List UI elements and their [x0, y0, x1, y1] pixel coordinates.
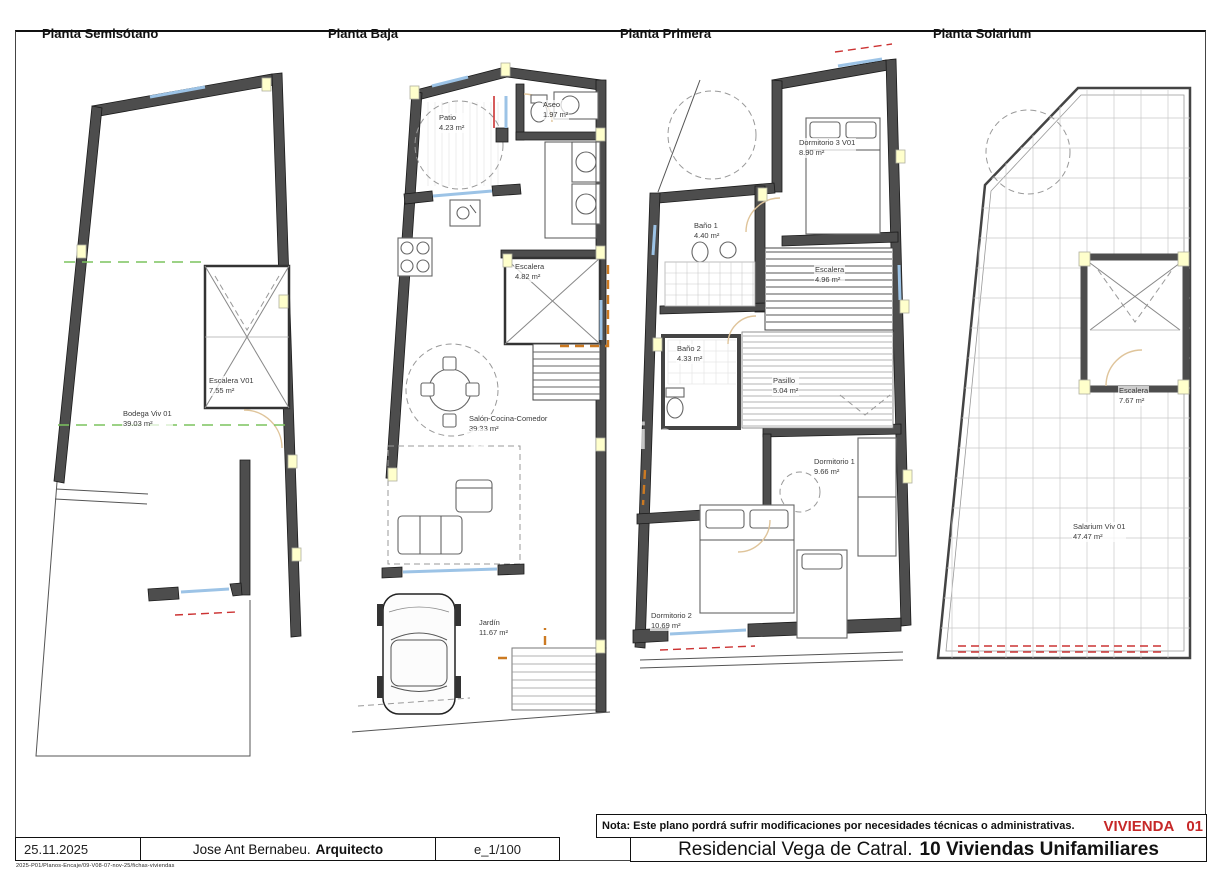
- titleblock-left-table: 25.11.2025 Jose Ant Bernabeu. Arquitecto…: [15, 837, 560, 861]
- architect-name: Jose Ant Bernabeu.: [193, 842, 311, 857]
- room-name: Baño 1: [694, 221, 718, 230]
- room-area: 7.67 m²: [1119, 396, 1148, 406]
- room-label-bano1: Baño 1 4.40 m²: [693, 221, 720, 241]
- room-label-salon: Salón-Cocina-Comedor 39.33 m²: [468, 414, 548, 434]
- room-name: Escalera: [515, 262, 544, 271]
- room-name: Baño 2: [677, 344, 701, 353]
- bed-icon-dormitorio3: [806, 118, 880, 234]
- room-name: Salón-Cocina-Comedor: [469, 414, 547, 423]
- bathroom-1-fixtures: [665, 242, 755, 306]
- window-icon: [403, 569, 497, 572]
- room-label-bano2: Baño 2 4.33 m²: [676, 344, 703, 364]
- plan-solarium-geometry: [938, 88, 1190, 658]
- room-area: 4.82 m²: [515, 272, 544, 282]
- window-icon: [181, 589, 229, 592]
- room-name: Escalera: [815, 265, 844, 274]
- room-area: 4.40 m²: [694, 231, 719, 241]
- room-label-dormitorio2: Dormitorio 2 10.69 m²: [650, 611, 693, 631]
- plan-title-solarium: Planta Solarium: [933, 26, 1031, 41]
- room-name: Dormitorio 2: [651, 611, 692, 620]
- stove-icon: [398, 238, 432, 276]
- room-label-dormitorio3: Dormitorio 3 V01 8.90 m²: [798, 138, 856, 158]
- room-area: 1.97 m²: [543, 110, 568, 120]
- room-label-pasillo: Pasillo 5.04 m²: [772, 376, 799, 396]
- room-name: Bodega Viv 01: [123, 409, 172, 418]
- wardrobe-icon: [858, 438, 896, 556]
- kitchen-sink-icon: [450, 200, 480, 226]
- exterior-stairs-icon: [512, 648, 600, 710]
- room-label-escalera-primera: Escalera 4.96 m²: [814, 265, 845, 285]
- vivienda-number: 01: [1186, 818, 1203, 835]
- titleblock-nota-row: Nota: Este plano pordrá sufrir modificac…: [596, 814, 1207, 838]
- stairs-icon: [765, 248, 893, 330]
- room-area: 5.04 m²: [773, 386, 798, 396]
- room-name: Escalera: [1119, 386, 1148, 395]
- room-area: 4.33 m²: [677, 354, 702, 364]
- plan-title-semisotano: Planta Semisótano: [42, 26, 158, 41]
- vivienda-label: VIVIENDA: [1103, 818, 1174, 835]
- pasillo-hatch: [742, 332, 893, 428]
- property-boundary-line: [36, 482, 250, 756]
- room-name: Patio: [439, 113, 456, 122]
- plan-primera-geometry: [633, 44, 912, 668]
- room-name: Dormitorio 1: [814, 457, 855, 466]
- stairs-icon: [1084, 257, 1186, 389]
- room-area: 10.69 m²: [651, 621, 692, 631]
- room-name: Escalera V01: [209, 376, 254, 385]
- project-subtitle: 10 Viviendas Unifamiliares: [920, 839, 1159, 861]
- titleblock-project-title: Residencial Vega de Catral. 10 Viviendas…: [630, 837, 1207, 862]
- plan-title-primera: Planta Primera: [620, 26, 711, 41]
- bed-icon-dormitorio2: [797, 550, 847, 638]
- plan-title-baja: Planta Baja: [328, 26, 398, 41]
- window-icon: [670, 630, 746, 634]
- titleblock-date: 25.11.2025: [16, 838, 141, 860]
- titleblock-architect: Jose Ant Bernabeu. Arquitecto: [141, 838, 436, 860]
- sofa-icon: [398, 480, 492, 554]
- room-label-escalera-solarium: Escalera 7.67 m²: [1118, 386, 1149, 406]
- room-label-aseo: Aseo 1.97 m²: [542, 100, 569, 120]
- door-swing-icon: [244, 410, 282, 448]
- room-label-escalera-v01: Escalera V01 7.55 m²: [208, 376, 255, 396]
- room-name: Pasillo: [773, 376, 795, 385]
- bed-icon-dormitorio1: [700, 505, 794, 613]
- toilet-icon: [667, 398, 683, 418]
- room-area: 39.33 m²: [469, 424, 547, 434]
- room-area: 7.55 m²: [209, 386, 254, 396]
- vivienda-badge: VIVIENDA 01: [1103, 818, 1203, 835]
- room-label-salarium: Salarium Viv 01 47.47 m²: [1072, 522, 1126, 542]
- dashed-circle-marker: [668, 91, 756, 179]
- room-label-jardin: Jardín 11.67 m²: [478, 618, 509, 638]
- room-area: 11.67 m²: [479, 628, 508, 638]
- titleblock-scale: e_1/100: [436, 838, 559, 860]
- room-label-patio: Patio 4.23 m²: [438, 113, 465, 133]
- room-area: 39.03 m²: [123, 419, 172, 429]
- room-area: 8.90 m²: [799, 148, 855, 158]
- room-label-escalera-baja: Escalera 4.82 m²: [514, 262, 545, 282]
- window-icon: [653, 225, 655, 255]
- window-icon: [433, 191, 492, 196]
- room-name: Jardín: [479, 618, 500, 627]
- room-area: 47.47 m²: [1073, 532, 1125, 542]
- project-name: Residencial Vega de Catral.: [678, 839, 912, 861]
- room-name: Salarium Viv 01: [1073, 522, 1125, 531]
- window-icon: [899, 265, 900, 300]
- room-label-dormitorio1: Dormitorio 1 9.66 m²: [813, 457, 856, 477]
- floor-plans-drawing: [0, 0, 1221, 887]
- car-icon: [377, 594, 461, 714]
- room-name: Aseo: [543, 100, 560, 109]
- room-area: 4.23 m²: [439, 123, 464, 133]
- file-reference-text: 2025-P01/Planos-Encaje/09-V08-07-nov-25/…: [16, 863, 175, 869]
- room-label-bodega: Bodega Viv 01 39.03 m²: [122, 409, 173, 429]
- room-area: 4.96 m²: [815, 275, 844, 285]
- room-area: 9.66 m²: [814, 467, 855, 477]
- room-name: Dormitorio 3 V01: [799, 138, 855, 147]
- nota-text: Nota: Este plano pordrá sufrir modificac…: [602, 820, 1075, 832]
- architect-title: Arquitecto: [316, 842, 384, 857]
